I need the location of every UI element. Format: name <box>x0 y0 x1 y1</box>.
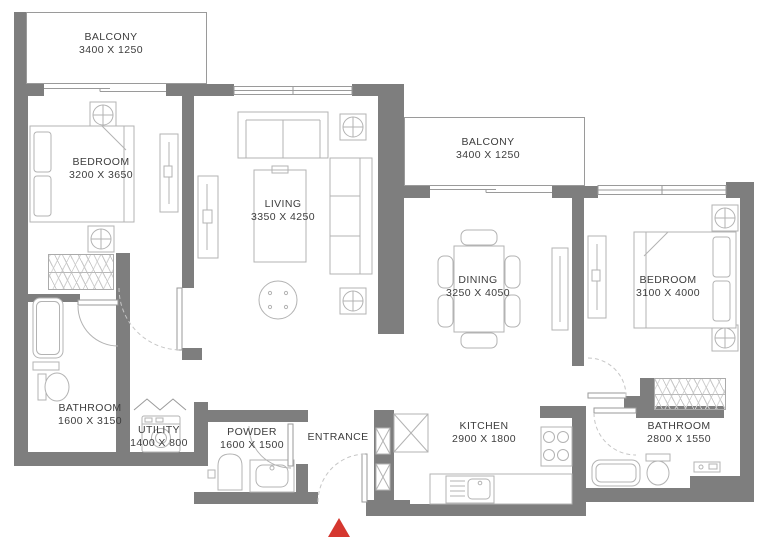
bifold-door <box>134 399 186 410</box>
door <box>78 300 118 346</box>
sofa <box>238 112 328 158</box>
console <box>588 236 606 318</box>
room-label-bathroom-left: BATHROOM1600 X 3150 <box>58 402 122 428</box>
stove <box>541 427 572 466</box>
room-label-entrance: ENTRANCE <box>308 431 369 444</box>
sofa <box>330 158 372 274</box>
room-label-bedroom-right: BEDROOM3100 X 4000 <box>636 274 700 300</box>
door <box>119 288 182 350</box>
bathroom-shelf <box>33 362 59 370</box>
tv-unit <box>198 176 218 258</box>
entrance-door <box>318 454 367 502</box>
room-label-balcony-center: BALCONY3400 X 1250 <box>456 136 520 162</box>
cabinet <box>552 248 568 330</box>
toilet <box>208 454 242 490</box>
door <box>594 408 636 455</box>
sink <box>694 462 720 472</box>
bathtub <box>33 298 63 358</box>
door <box>588 358 626 398</box>
toilet <box>646 454 670 485</box>
room-label-living: LIVING3350 X 4250 <box>251 198 315 224</box>
toilet <box>38 373 69 401</box>
console <box>160 134 178 212</box>
room-label-powder: POWDER1600 X 1500 <box>220 426 284 452</box>
floor-plan: BALCONY3400 X 1250 BEDROOM3200 X 3650 LI… <box>0 0 768 547</box>
bathtub <box>592 460 640 486</box>
shaft-symbol <box>376 414 428 490</box>
room-label-utility: UTILITY1400 X 800 <box>130 424 188 450</box>
kitchen-sink <box>446 476 494 503</box>
room-label-bedroom-left: BEDROOM3200 X 3650 <box>69 156 133 182</box>
room-label-kitchen: KITCHEN2900 X 1800 <box>452 420 516 446</box>
vanity-sink <box>250 460 294 492</box>
room-label-balcony-top: BALCONY3400 X 1250 <box>79 31 143 57</box>
room-label-dining: DINING3250 X 4050 <box>446 274 510 300</box>
round-rug <box>259 281 297 319</box>
entrance-marker-icon <box>328 518 350 537</box>
room-label-bathroom-right: BATHROOM2800 X 1550 <box>647 420 711 446</box>
